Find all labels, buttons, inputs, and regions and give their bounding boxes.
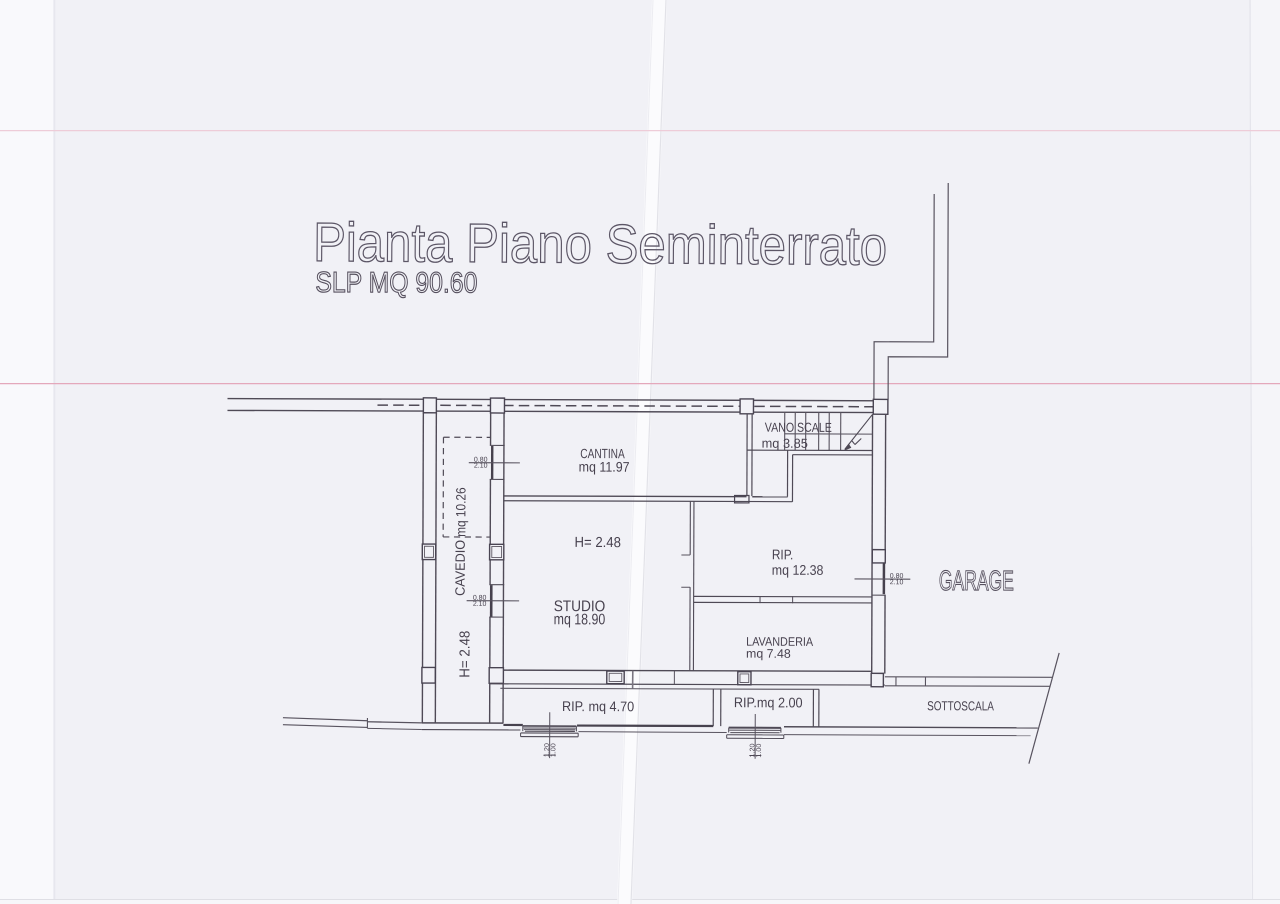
- svg-text:mq 11.97: mq 11.97: [579, 459, 630, 475]
- svg-text:SOTTOSCALA: SOTTOSCALA: [927, 698, 994, 713]
- svg-text:RIP.: RIP.: [772, 546, 794, 562]
- svg-text:mq 10.26: mq 10.26: [453, 487, 468, 537]
- svg-text:1.00: 1.00: [550, 743, 557, 757]
- svg-text:1.00: 1.00: [756, 743, 763, 757]
- svg-text:mq 12.38: mq 12.38: [772, 562, 824, 578]
- svg-text:2.10: 2.10: [474, 463, 488, 470]
- svg-text:SLP MQ 90.60: SLP MQ 90.60: [315, 267, 477, 300]
- svg-text:GARAGE: GARAGE: [939, 565, 1014, 596]
- svg-text:2.10: 2.10: [890, 579, 904, 586]
- svg-text:H= 2.48: H= 2.48: [574, 535, 620, 551]
- svg-text:RIP. mq 4.70: RIP. mq 4.70: [562, 698, 634, 714]
- svg-text:RIP.mq 2.00: RIP.mq 2.00: [734, 694, 803, 710]
- svg-text:CAVEDIO: CAVEDIO: [453, 540, 468, 596]
- svg-text:mq 7.48: mq 7.48: [746, 647, 791, 661]
- svg-text:mq 18.90: mq 18.90: [554, 611, 606, 628]
- svg-text:VANO SCALE: VANO SCALE: [765, 420, 832, 435]
- svg-text:mq 3.85: mq 3.85: [762, 436, 808, 451]
- svg-text:H= 2.48: H= 2.48: [457, 631, 473, 678]
- svg-text:2.10: 2.10: [473, 601, 487, 608]
